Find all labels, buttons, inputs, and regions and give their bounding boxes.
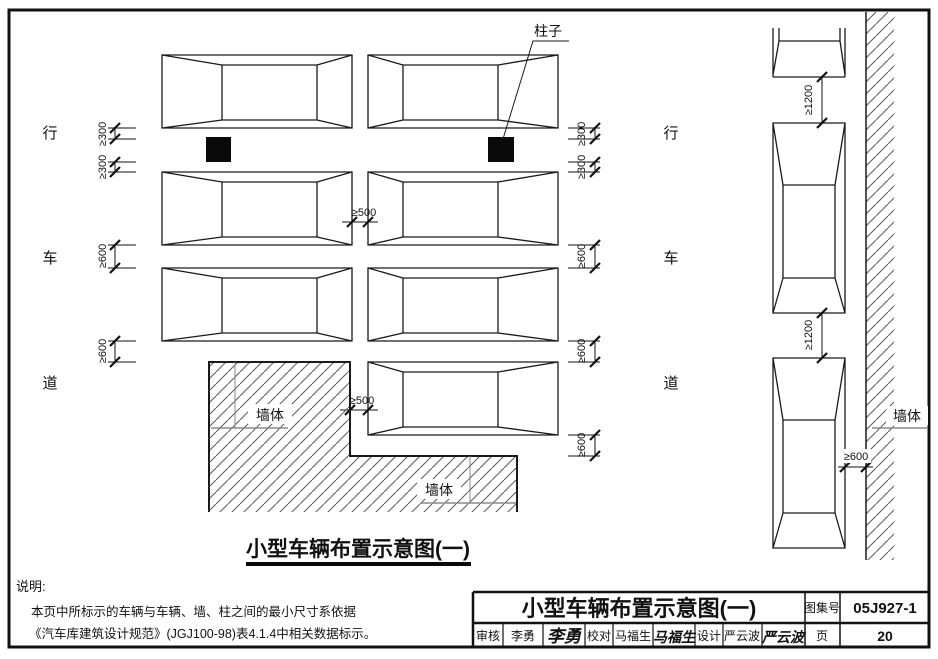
wall-label-3: 墙体 [893, 408, 921, 424]
dim-1200-1: ≥1200 [803, 85, 815, 116]
dim-600-right-3: ≥600 [576, 433, 588, 457]
drawing-sheet: 行 车 道 行 车 道 柱子 ≥300 ≥300 ≥6 [0, 0, 938, 659]
tb-title: 小型车辆布置示意图(一) [522, 596, 757, 621]
lane-label-left-3: 道 [42, 375, 57, 392]
diagram-title: 小型车辆布置示意图(一) [246, 537, 470, 561]
dim-600-left-2: ≥600 [97, 339, 109, 363]
dim-group-left [108, 128, 136, 362]
car-top-view [162, 172, 352, 245]
wall-label-2: 墙体 [425, 482, 453, 498]
wall-l-shaped: 墙体 墙体 [209, 362, 517, 512]
dim-300-left-1: ≥300 [97, 122, 109, 146]
dim-600-right-1: ≥600 [576, 244, 588, 268]
column-leader-line [503, 41, 569, 139]
side-diagram: ≥1200 ≥1200 墙体 ≥600 [773, 12, 928, 560]
dim-600-left-1: ≥600 [97, 244, 109, 268]
dim-300-right-2: ≥300 [576, 155, 588, 179]
lane-label-left-1: 行 [42, 125, 57, 142]
car-top-view [773, 123, 845, 313]
wall-label-1: 墙体 [256, 407, 284, 423]
car-top-view [368, 268, 558, 341]
tb-page-label: 页 [816, 629, 828, 643]
column-marker [206, 137, 231, 162]
tb-review-signature: 李勇 [547, 627, 583, 646]
title-block: 小型车辆布置示意图(一) 图集号 05J927-1 审核 李勇 李勇 校对 马福… [473, 592, 929, 647]
column-marker [488, 137, 514, 162]
notes-line-2: 《汽车库建筑设计规范》(JGJ100-98)表4.1.4中相关数据标示。 [29, 626, 376, 641]
tb-proof-label: 校对 [587, 628, 611, 643]
lane-label-right-1: 行 [663, 125, 678, 142]
tb-proof-signature: 马福生 [653, 629, 697, 645]
main-diagram: 行 车 道 行 车 道 柱子 ≥300 ≥300 ≥6 [42, 23, 678, 566]
tb-page-number: 20 [877, 628, 893, 644]
dim-500-1: ≥500 [352, 207, 376, 219]
tb-atlas-label: 图集号 [804, 600, 840, 615]
car-top-view [162, 55, 352, 128]
wall-right: 墙体 [866, 12, 928, 560]
tb-atlas-number: 05J927-1 [853, 600, 916, 617]
column-label: 柱子 [534, 23, 562, 39]
car-top-view [162, 268, 352, 341]
lane-label-right-3: 道 [663, 375, 678, 392]
lane-label-right-2: 车 [663, 250, 678, 267]
dim-1200-2: ≥1200 [803, 320, 815, 351]
car-top-view [773, 358, 845, 548]
dim-600-wall: ≥600 [844, 451, 868, 463]
car-top-view [368, 55, 558, 128]
car-top-view [368, 362, 558, 435]
dim-300-right-1: ≥300 [576, 122, 588, 146]
car-top-view-partial [773, 28, 845, 77]
lane-label-left-2: 车 [42, 250, 57, 267]
dim-600-right-2: ≥600 [576, 339, 588, 363]
tb-review-name: 李勇 [511, 628, 535, 643]
tb-proof-name: 马福生 [615, 628, 651, 643]
dim-500-2: ≥500 [350, 395, 374, 407]
tb-design-name: 严云波 [724, 629, 760, 643]
tb-design-signature: 严云波 [761, 629, 807, 645]
dim-300-left-2: ≥300 [97, 155, 109, 179]
diagram-title-underline [246, 562, 471, 566]
notes-line-1: 本页中所标示的车辆与车辆、墙、柱之间的最小尺寸系依据 [31, 604, 356, 619]
notes-heading: 说明: [16, 579, 46, 594]
parking-layout-drawing: 行 车 道 行 车 道 柱子 ≥300 ≥300 ≥6 [0, 0, 938, 659]
car-top-view [368, 172, 558, 245]
tb-review-label: 审核 [476, 628, 500, 643]
notes: 说明: 本页中所标示的车辆与车辆、墙、柱之间的最小尺寸系依据 《汽车库建筑设计规… [16, 579, 376, 641]
tb-design-label: 设计 [697, 629, 721, 643]
